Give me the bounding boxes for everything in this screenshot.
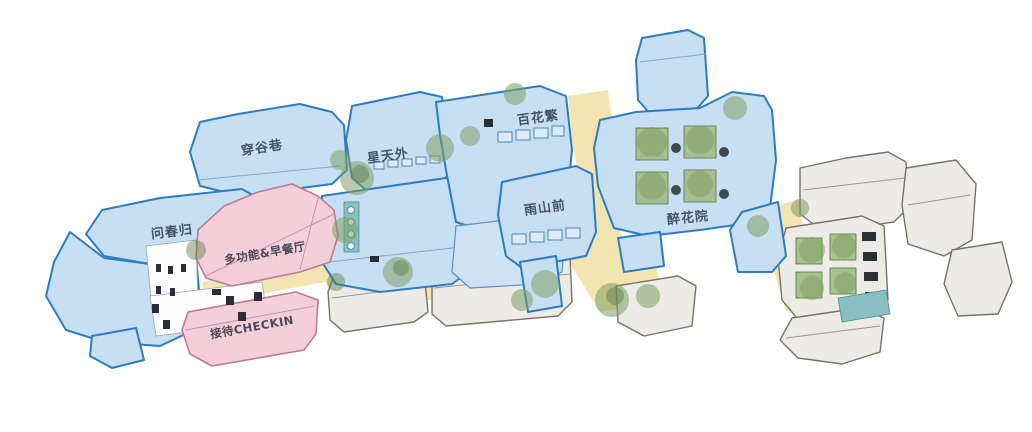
table-icon xyxy=(719,147,729,157)
window xyxy=(156,286,161,294)
window xyxy=(170,288,175,296)
tree-icon xyxy=(332,217,358,243)
balcony xyxy=(512,234,526,244)
building-zuihuayuan-south xyxy=(618,232,664,272)
window xyxy=(156,264,161,272)
window xyxy=(181,264,186,272)
gray-building xyxy=(944,242,1012,316)
window xyxy=(864,272,878,281)
balcony xyxy=(416,157,426,164)
tree-icon xyxy=(351,165,369,183)
gray-building xyxy=(902,160,976,256)
balcony xyxy=(552,126,564,136)
tree-icon xyxy=(799,237,825,263)
tree-icon xyxy=(504,83,526,105)
spa-circle-icon xyxy=(348,243,355,250)
table-icon xyxy=(671,185,681,195)
window xyxy=(168,266,173,274)
balcony xyxy=(498,132,512,142)
tree-icon xyxy=(327,273,345,291)
tree-icon xyxy=(531,270,559,298)
table-icon xyxy=(671,143,681,153)
tree-icon xyxy=(426,134,454,162)
window xyxy=(226,296,234,305)
site-plan-drawing: 穿谷巷 问春归 星天外 百花繁 雨山前 醉花院 多功能&早餐厅 接待CHECKI… xyxy=(0,0,1032,432)
tree-icon xyxy=(686,126,714,154)
tree-icon xyxy=(186,240,206,260)
tree-icon xyxy=(460,126,480,146)
tree-icon xyxy=(832,234,856,258)
window xyxy=(484,119,493,127)
tree-icon xyxy=(800,276,824,300)
window xyxy=(163,320,170,329)
building-yushanqian xyxy=(498,166,596,268)
tree-icon xyxy=(330,150,350,170)
building-zuihuayuan-tower xyxy=(636,30,708,116)
stair-mark xyxy=(370,256,379,262)
balcony xyxy=(534,128,548,138)
tree-icon xyxy=(834,272,856,294)
tree-icon xyxy=(747,215,769,237)
tree-icon xyxy=(636,284,660,308)
stair-mark xyxy=(212,289,221,295)
spa-circle-icon xyxy=(348,207,355,214)
table-icon xyxy=(719,189,729,199)
window xyxy=(152,304,159,313)
balcony xyxy=(566,228,580,238)
tree-icon xyxy=(723,96,747,120)
window xyxy=(862,232,876,241)
tree-icon xyxy=(687,171,713,197)
window xyxy=(238,312,246,321)
window xyxy=(863,252,877,261)
gray-roof xyxy=(616,276,696,336)
tree-icon xyxy=(393,260,409,276)
balcony xyxy=(548,230,562,240)
balcony xyxy=(516,130,530,140)
tree-icon xyxy=(637,127,667,157)
balcony xyxy=(530,232,544,242)
tree-icon xyxy=(606,287,624,305)
tree-icon xyxy=(791,199,809,217)
window xyxy=(254,292,262,301)
site-plan-canvas: 穿谷巷 问春归 星天外 百花繁 雨山前 醉花院 多功能&早餐厅 接待CHECKI… xyxy=(0,0,1032,432)
tree-icon xyxy=(638,172,666,200)
tree-icon xyxy=(511,289,533,311)
